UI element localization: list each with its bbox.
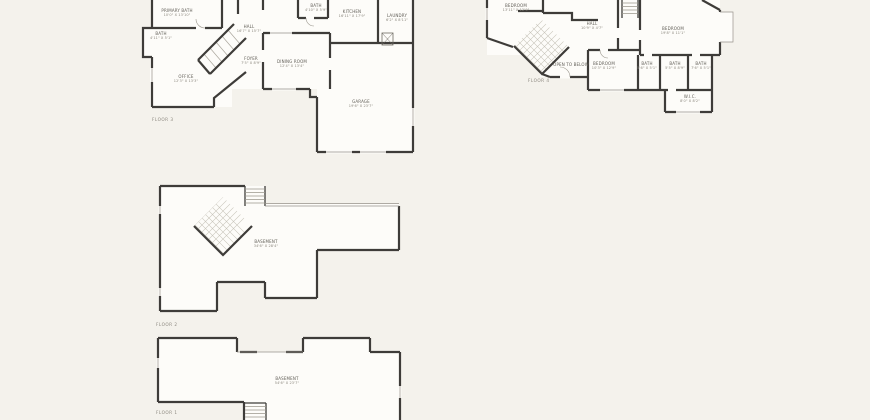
room-label-bath-3: BATH 7'6" X 5'1" (691, 61, 711, 71)
room-label-bath-left: BATH 4'11" X 5'1" (150, 31, 172, 41)
room-label-hall-floor4: HALL 10'9" X 4'7" (581, 21, 603, 31)
room-label-wic: W.I.C. 8'0" X 8'2" (680, 94, 700, 104)
room-label-foyer: FOYER 7'5" X 8'9" (241, 56, 261, 66)
room-label-basement-upper: BASEMENT 34'6" X 28'4" (254, 239, 278, 249)
room-label-hall-floor3: HALL 16'7" X 15'7" (237, 24, 261, 34)
room-label-bath-1: BATH 5'6" X 5'1" (637, 61, 657, 71)
room-label-bath-2: BATH 5'5" X 8'9" (665, 61, 685, 71)
room-label-office: OFFICE 12'3" X 13'3" (174, 74, 198, 84)
floor-plan-page: PRIMARY BATH 10'0" X 13'10" BATH 4'11" X… (0, 0, 870, 420)
room-label-basement-lower: BASEMENT 54'6" X 23'7" (275, 376, 299, 386)
room-label-bedroom-2: BEDROOM 19'8" X 11'1" (661, 26, 685, 36)
floor-label-floor4: FLOOR 4 (528, 78, 550, 83)
floor-plan-drawing (0, 0, 870, 420)
floor-label-floor2: FLOOR 2 (156, 322, 178, 327)
room-label-kitchen: KITCHEN 16'11" X 17'9" (339, 9, 366, 19)
floor-label-floor1: FLOOR 1 (156, 410, 178, 415)
room-label-bath-top: BATH 4'10" X 5'9" (305, 3, 327, 13)
room-label-primary-bath: PRIMARY BATH 10'0" X 13'10" (161, 8, 192, 18)
room-label-bedroom-1: BEDROOM 13'11" X 12'9" (503, 3, 530, 13)
room-label-open-to-below: OPEN TO BELOW (553, 62, 589, 67)
floor-label-floor3: FLOOR 3 (152, 117, 174, 122)
room-label-bedroom-3: BEDROOM 10'3" X 12'9" (592, 61, 616, 71)
room-label-dining-room: DINING ROOM 12'4" X 13'4" (277, 59, 307, 69)
room-label-laundry: LAUNDRY 6'2" X 8'11" (386, 13, 408, 23)
room-label-garage: GARAGE 19'6" X 23'7" (349, 99, 373, 109)
